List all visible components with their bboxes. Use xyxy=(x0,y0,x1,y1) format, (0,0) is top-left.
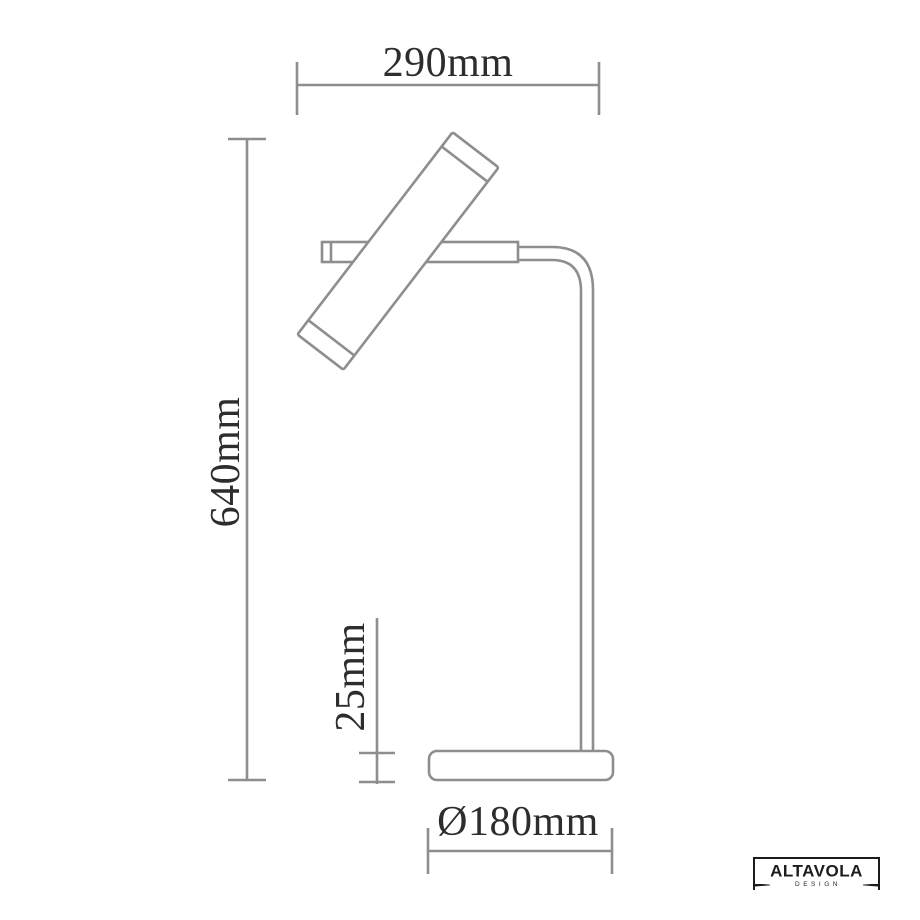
dim-base-diameter-label: Ø180mm xyxy=(437,798,599,846)
lamp-base xyxy=(429,751,613,780)
logo-right-wing-decoration xyxy=(863,884,878,887)
dim-width-label: 290mm xyxy=(383,39,514,87)
altavola-logo: ALTAVOLA DESIGN xyxy=(753,857,880,890)
lamp-line-art xyxy=(0,0,920,920)
logo-subtitle-row: DESIGN xyxy=(755,881,878,890)
logo-subtitle-text: DESIGN xyxy=(795,882,841,889)
lamp-stand xyxy=(518,247,593,753)
logo-brand-text: ALTAVOLA xyxy=(755,860,878,881)
logo-left-wing-decoration xyxy=(755,884,770,887)
dim-base-height-label: 25mm xyxy=(327,622,375,731)
technical-drawing-page: 290mm 640mm 25mm Ø180mm ALTAVOLA DESIGN xyxy=(0,0,920,920)
dim-height-label: 640mm xyxy=(202,397,250,528)
